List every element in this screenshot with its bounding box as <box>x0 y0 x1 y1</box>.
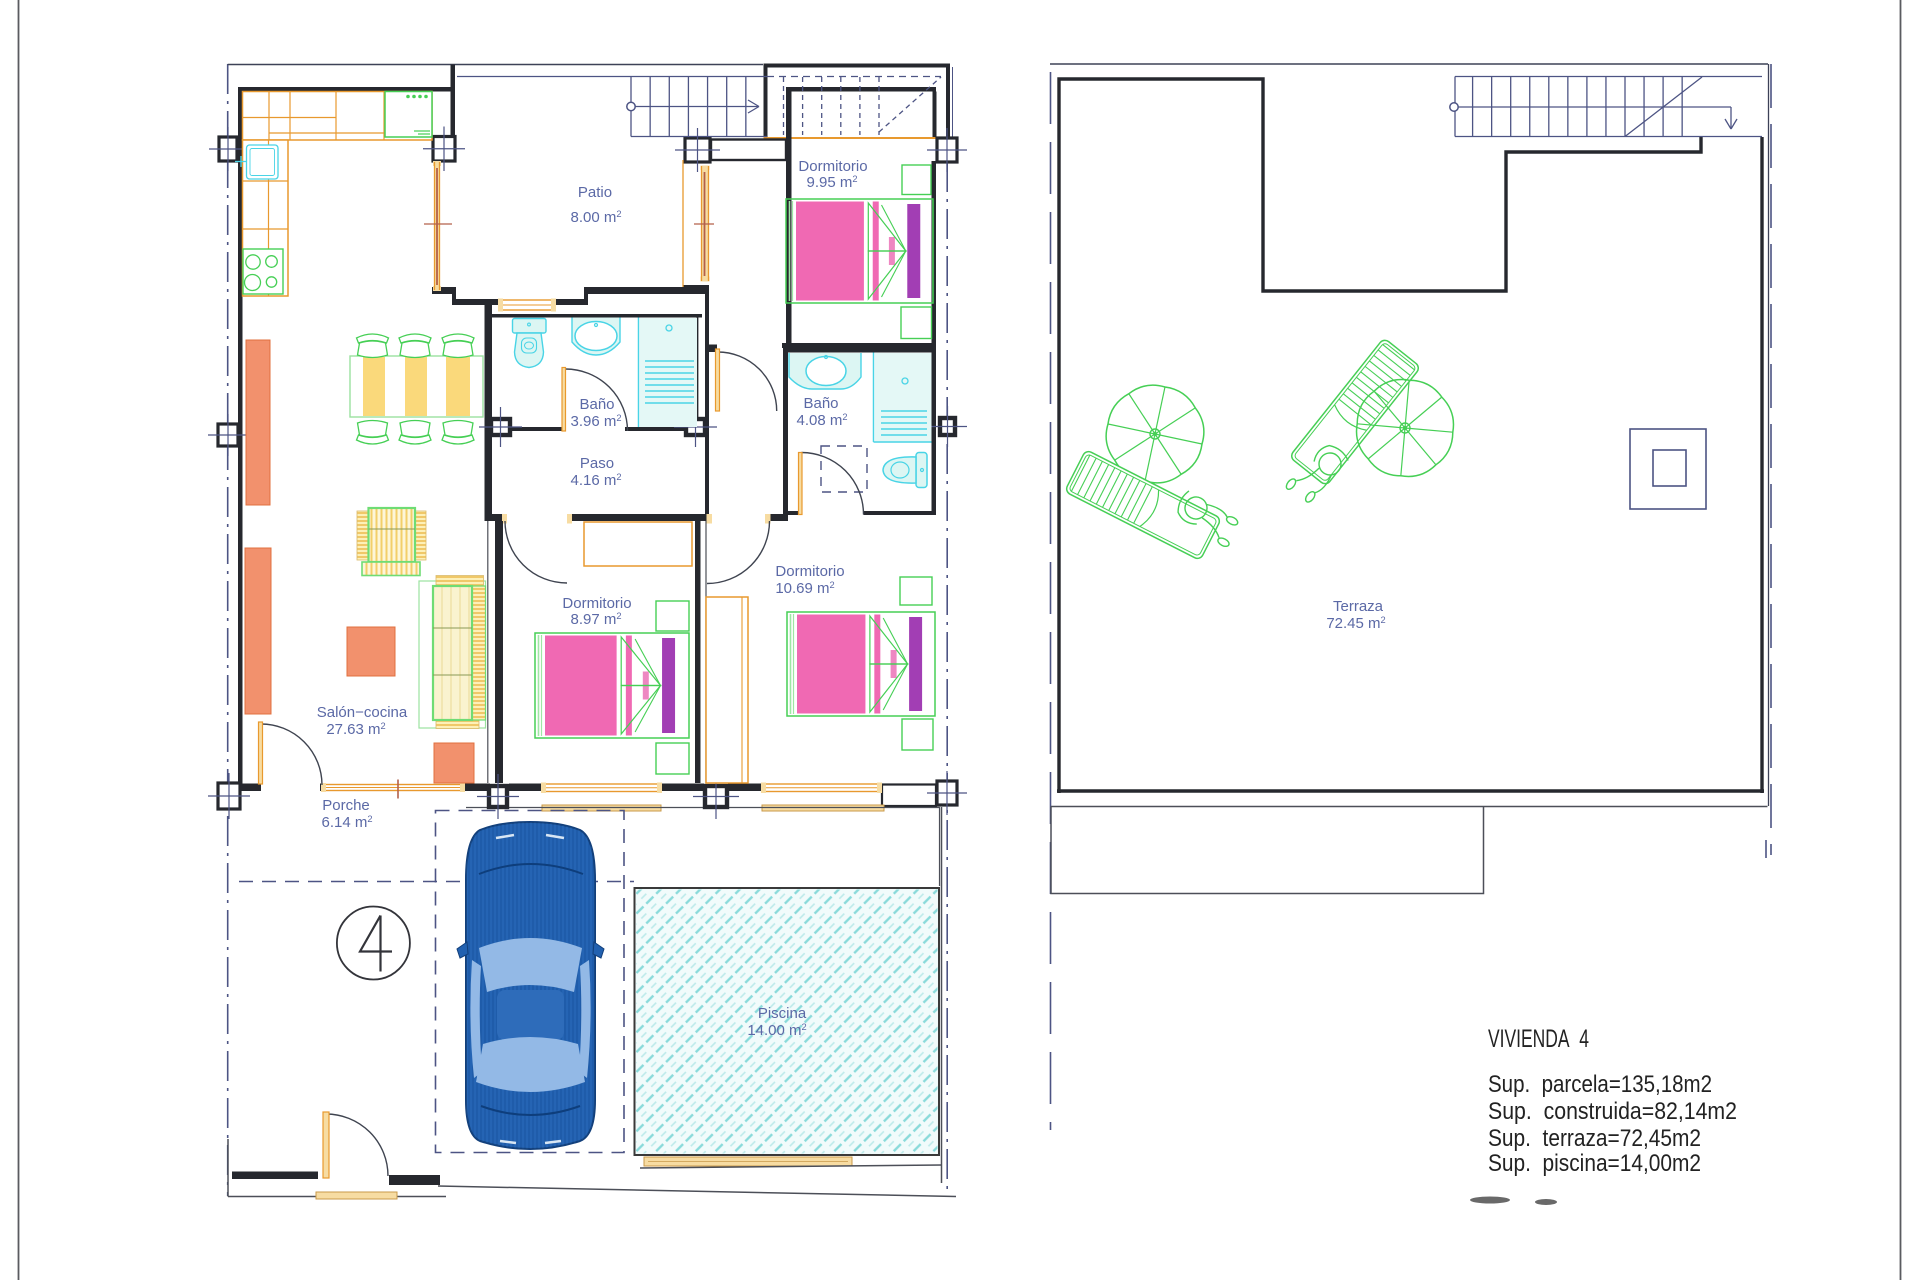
svg-text:Piscina: Piscina <box>758 1005 807 1022</box>
svg-text:Sup. construida=82,14m2: Sup. construida=82,14m2 <box>1488 1098 1737 1125</box>
svg-text:Sup. piscina=14,00m2: Sup. piscina=14,00m2 <box>1488 1150 1701 1177</box>
svg-text:Baño: Baño <box>803 395 838 412</box>
svg-text:4.16 m2: 4.16 m2 <box>570 472 621 489</box>
svg-text:8.00 m2: 8.00 m2 <box>570 209 621 226</box>
svg-text:Sup. parcela=135,18m2: Sup. parcela=135,18m2 <box>1488 1071 1712 1098</box>
svg-text:9.95 m2: 9.95 m2 <box>806 174 857 191</box>
svg-text:Salón−cocina: Salón−cocina <box>317 704 408 721</box>
svg-text:Patio: Patio <box>578 184 612 201</box>
svg-text:Sup. terraza=72,45m2: Sup. terraza=72,45m2 <box>1488 1125 1701 1152</box>
svg-text:Dormitorio: Dormitorio <box>562 595 631 612</box>
svg-text:8.97 m2: 8.97 m2 <box>570 611 621 628</box>
svg-text:Dormitorio: Dormitorio <box>798 158 867 175</box>
svg-text:6.14 m2: 6.14 m2 <box>321 814 372 831</box>
svg-text:Paso: Paso <box>580 455 614 472</box>
svg-text:4.08 m2: 4.08 m2 <box>796 412 847 429</box>
svg-text:Porche: Porche <box>322 797 370 814</box>
svg-text:27.63 m2: 27.63 m2 <box>326 721 385 738</box>
svg-text:3.96 m2: 3.96 m2 <box>570 413 621 430</box>
svg-text:72.45 m2: 72.45 m2 <box>1326 615 1385 632</box>
svg-text:Dormitorio: Dormitorio <box>775 563 844 580</box>
svg-text:Terraza: Terraza <box>1333 598 1384 615</box>
svg-text:10.69 m2: 10.69 m2 <box>775 580 834 597</box>
svg-text:Baño: Baño <box>579 396 614 413</box>
svg-text:VIVIENDA 4: VIVIENDA 4 <box>1488 1025 1589 1053</box>
svg-text:14.00 m2: 14.00 m2 <box>747 1022 806 1039</box>
